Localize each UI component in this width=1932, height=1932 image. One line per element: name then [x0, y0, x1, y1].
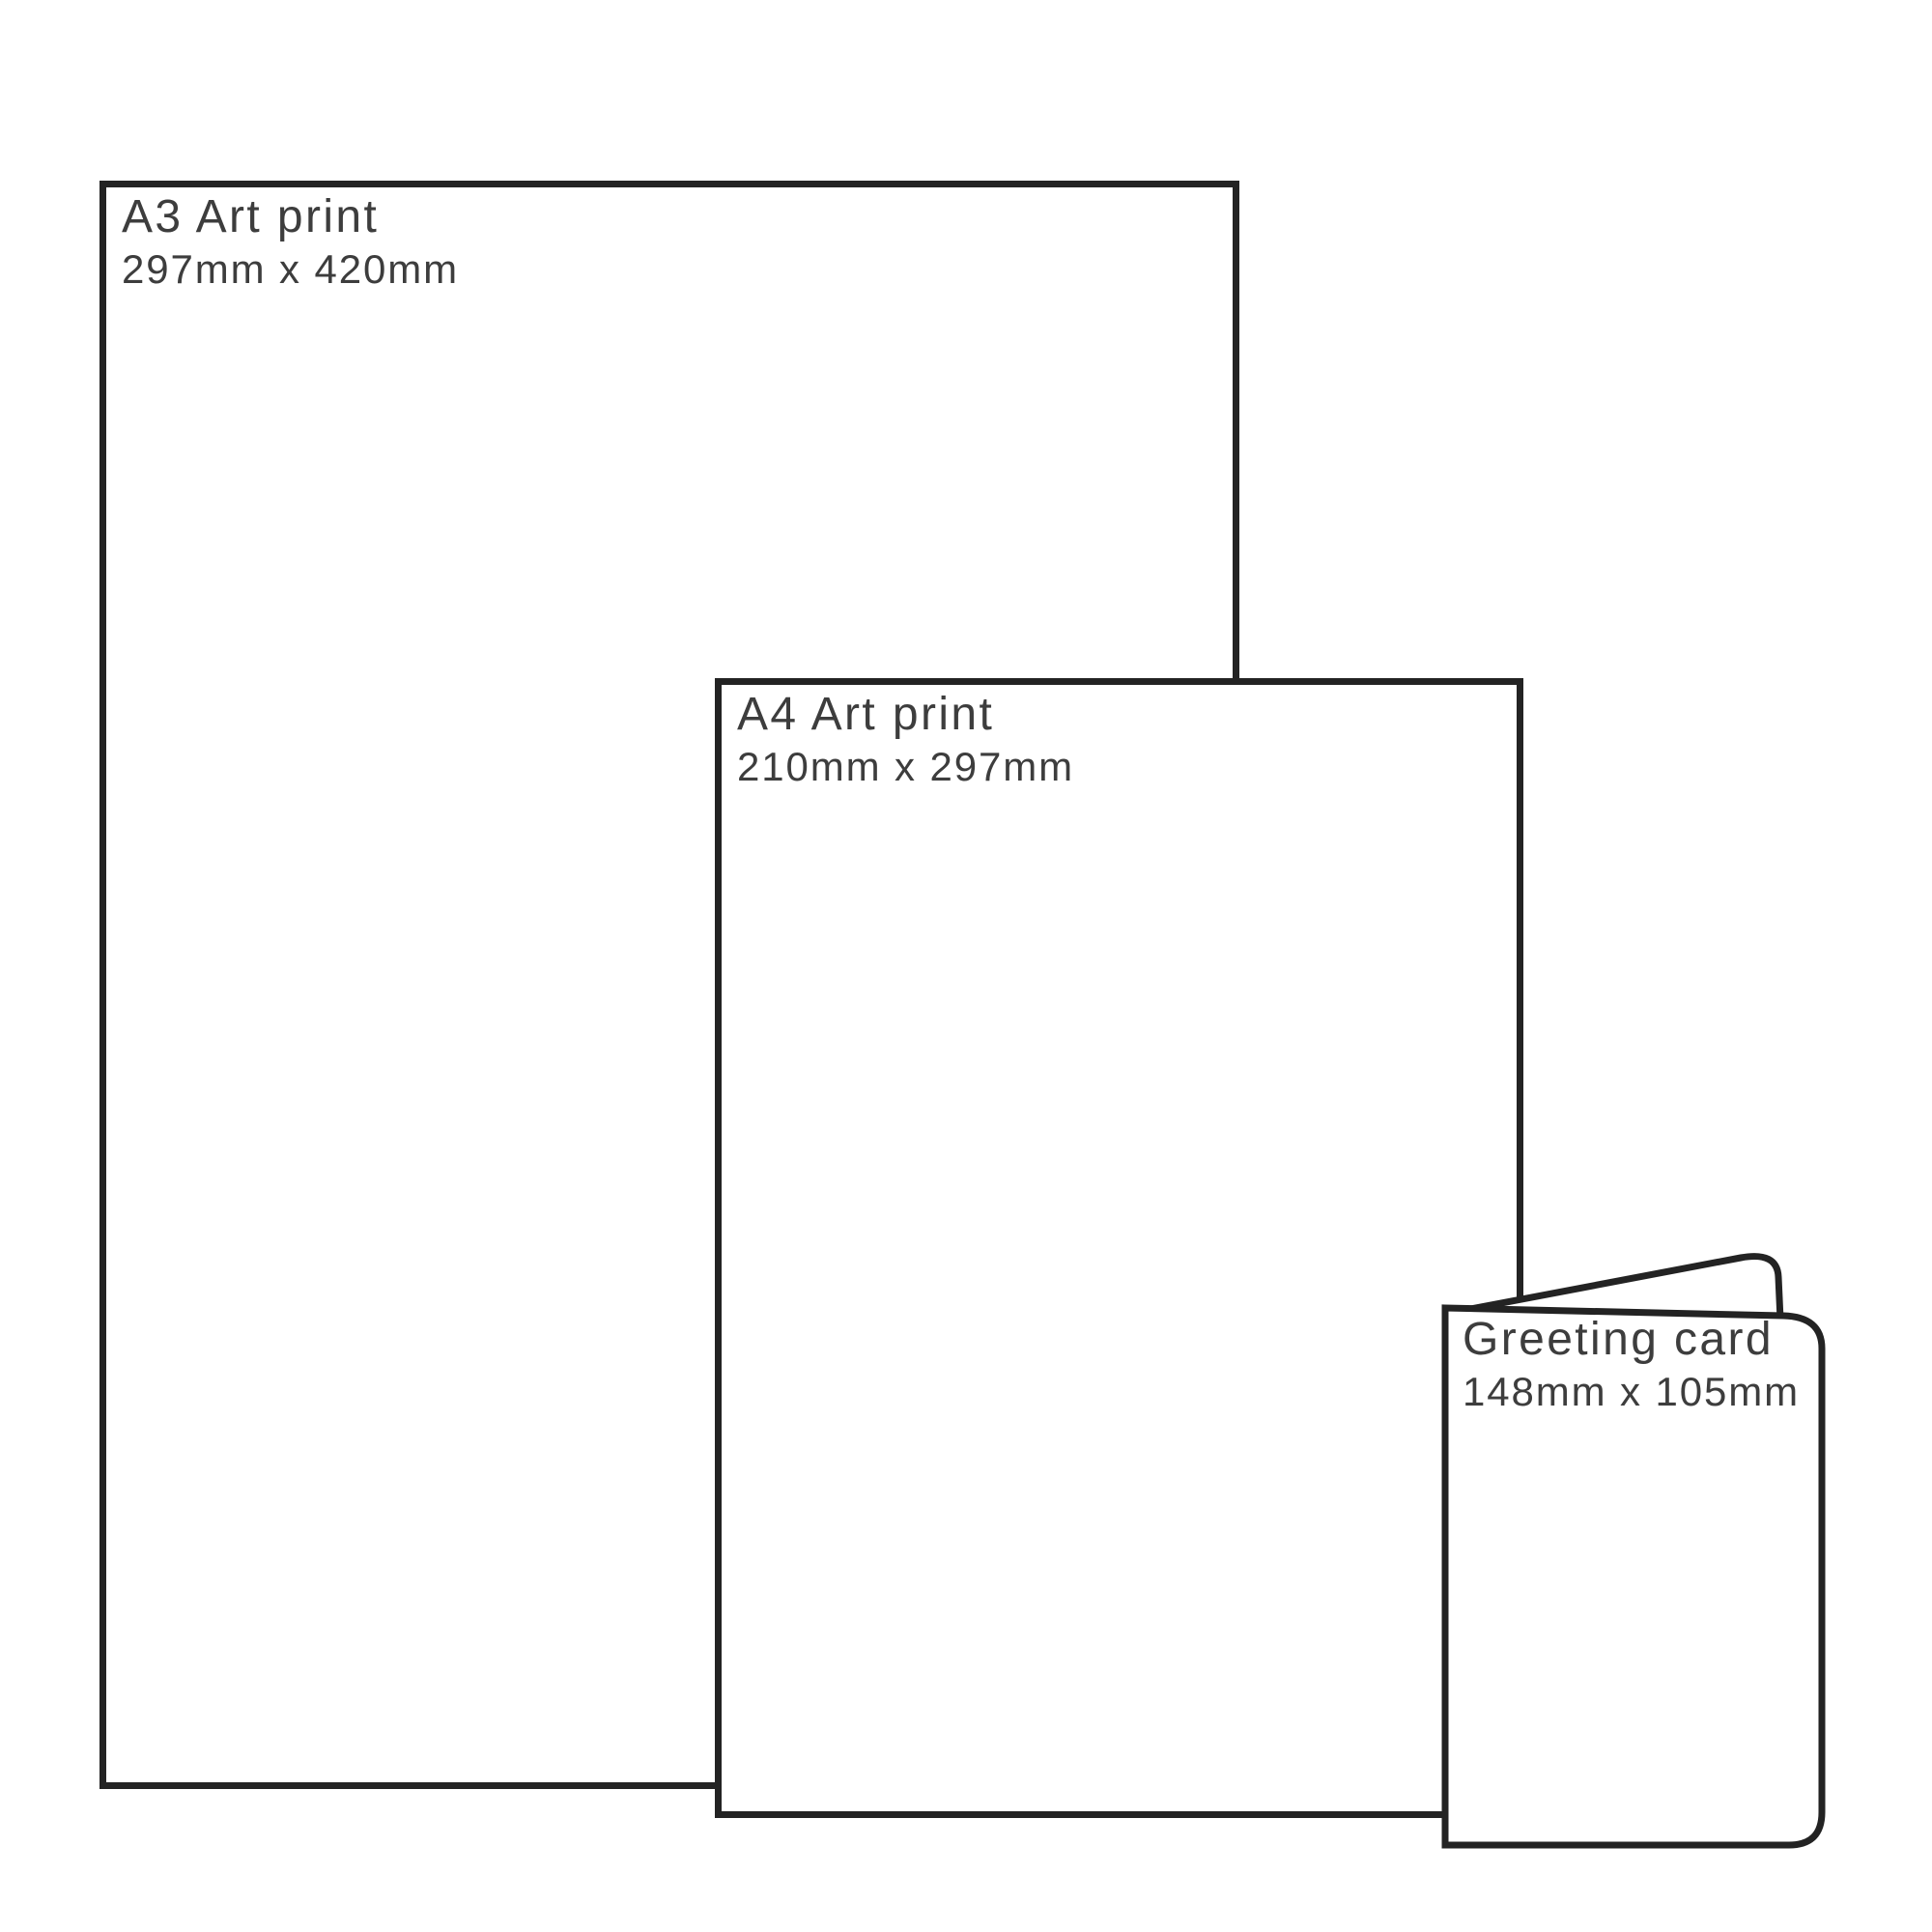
a3-title: A3 Art print — [122, 191, 459, 243]
a3-label-block: A3 Art print 297mm x 420mm — [122, 191, 459, 292]
a4-label-block: A4 Art print 210mm x 297mm — [737, 689, 1074, 789]
print-size-comparison-diagram: A3 Art print 297mm x 420mm A4 Art print … — [0, 0, 1932, 1932]
a4-title: A4 Art print — [737, 689, 1074, 741]
a3-dimensions: 297mm x 420mm — [122, 247, 459, 292]
greeting-card-title: Greeting card — [1463, 1314, 1800, 1366]
a4-sheet-outline: A4 Art print 210mm x 297mm — [715, 678, 1523, 1818]
a4-dimensions: 210mm x 297mm — [737, 745, 1074, 789]
greeting-card-label-block: Greeting card 148mm x 105mm — [1463, 1314, 1800, 1414]
greeting-card-dimensions: 148mm x 105mm — [1463, 1370, 1800, 1414]
